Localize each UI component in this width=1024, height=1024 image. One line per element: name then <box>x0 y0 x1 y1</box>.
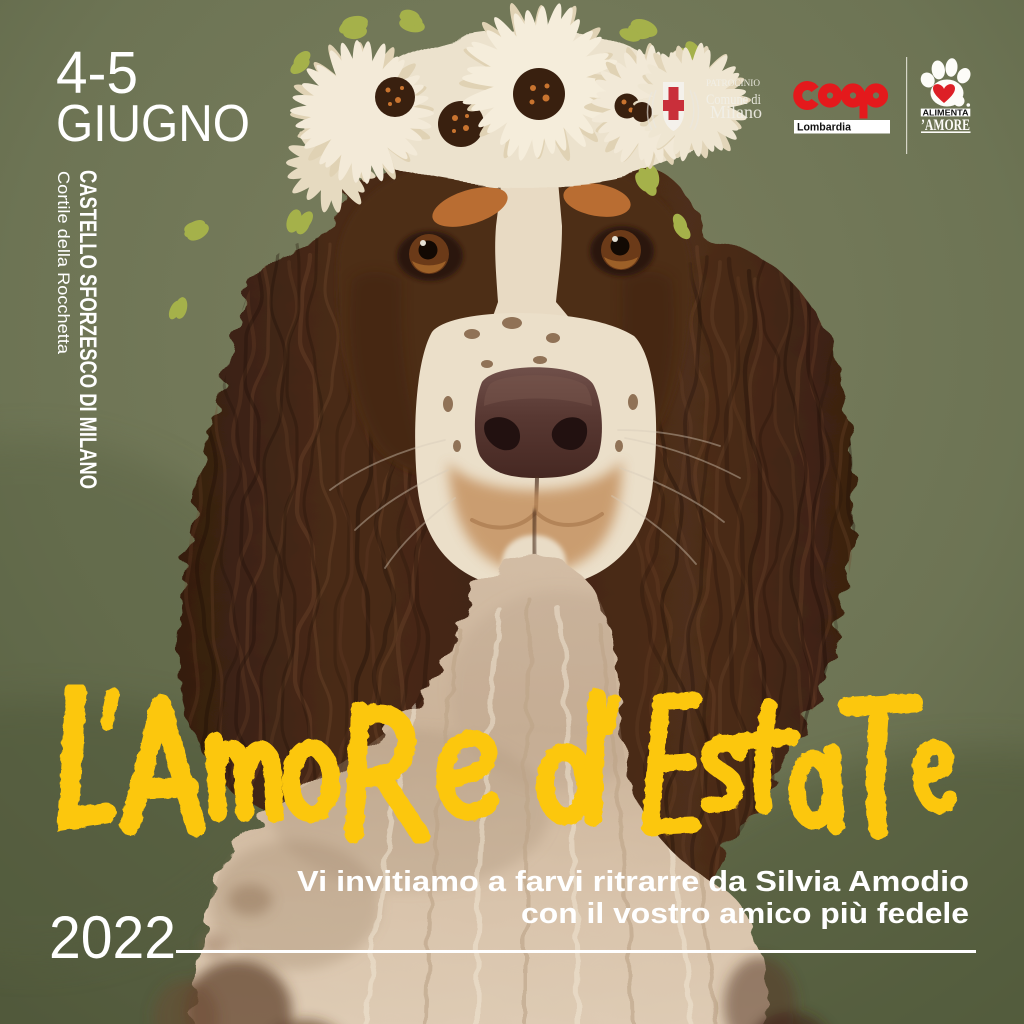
svg-text:CASTELLO SFORZESCO DI MILANO: CASTELLO SFORZESCO DI MILANO <box>74 170 101 489</box>
svg-text:ALIMENTA: ALIMENTA <box>923 108 969 117</box>
svg-text:Lombardia: Lombardia <box>797 122 852 134</box>
svg-text:PATROCINIO: PATROCINIO <box>706 79 760 89</box>
svg-text:Cortile della Rocchetta: Cortile della Rocchetta <box>54 171 73 355</box>
svg-text:Vi invitiamo a farvi ritrarre: Vi invitiamo a farvi ritrarre da Silvia … <box>297 866 969 898</box>
svg-text:Milano: Milano <box>710 102 762 122</box>
svg-text:2022: 2022 <box>49 904 176 971</box>
svg-text:GIUGNO: GIUGNO <box>56 95 250 153</box>
svg-text:con il vostro amico più fedele: con il vostro amico più fedele <box>521 898 969 930</box>
